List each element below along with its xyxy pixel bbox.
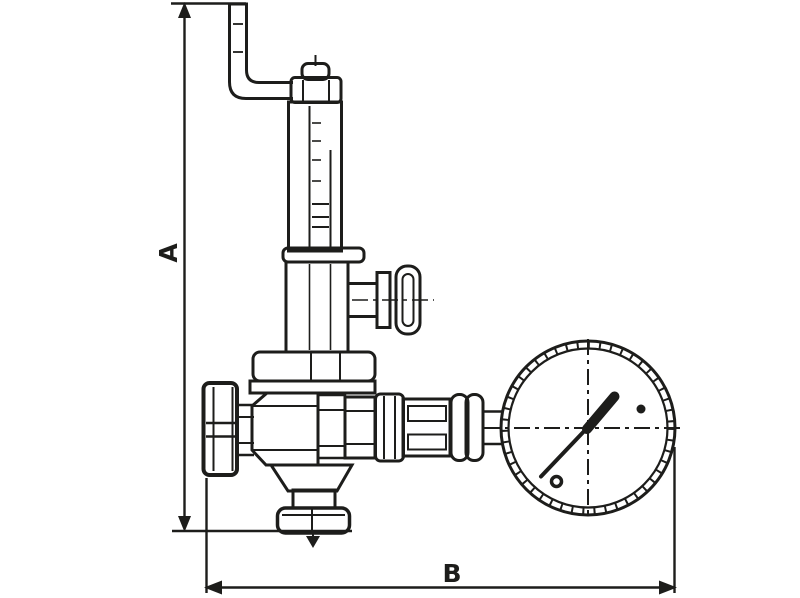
cap-hex (291, 78, 341, 103)
inlet-pipe (228, 4, 293, 99)
needle-hub-ring (552, 477, 562, 487)
valve-technical-drawing-page: A B (0, 0, 800, 598)
pressure-gauge (484, 339, 681, 519)
thread-marks (312, 123, 329, 227)
bonnet-body (286, 262, 348, 352)
gauge-needle (541, 397, 615, 477)
outlet-cylinder (293, 490, 335, 508)
bottom-outlet-flange (278, 508, 350, 533)
dim-a-label: A (154, 243, 183, 263)
housing-tube (289, 102, 342, 251)
valve-body (252, 393, 345, 465)
adjusting-cap (291, 55, 341, 103)
flange-lower-band (250, 381, 375, 393)
outlet-connector (345, 394, 502, 461)
dial-dot (637, 405, 646, 414)
dim-a-arrow-down (178, 516, 191, 532)
inlet-union (204, 383, 255, 475)
valve-technical-drawing: A B (0, 0, 800, 598)
outlet-neck (271, 465, 352, 491)
body-flange (250, 352, 375, 393)
bottom-outlet (271, 465, 352, 548)
outlet-box-detail (408, 435, 446, 450)
outlet-box (403, 399, 450, 456)
flange-outline (253, 352, 375, 381)
bonnet (283, 248, 434, 352)
outlet-section (345, 397, 375, 458)
outlet-box-detail (408, 406, 446, 421)
body-outline (252, 393, 318, 465)
dim-b-label: B (442, 559, 461, 588)
outlet-hex-nut (376, 394, 404, 461)
spring-housing (289, 102, 342, 251)
body-right-step (318, 395, 345, 458)
